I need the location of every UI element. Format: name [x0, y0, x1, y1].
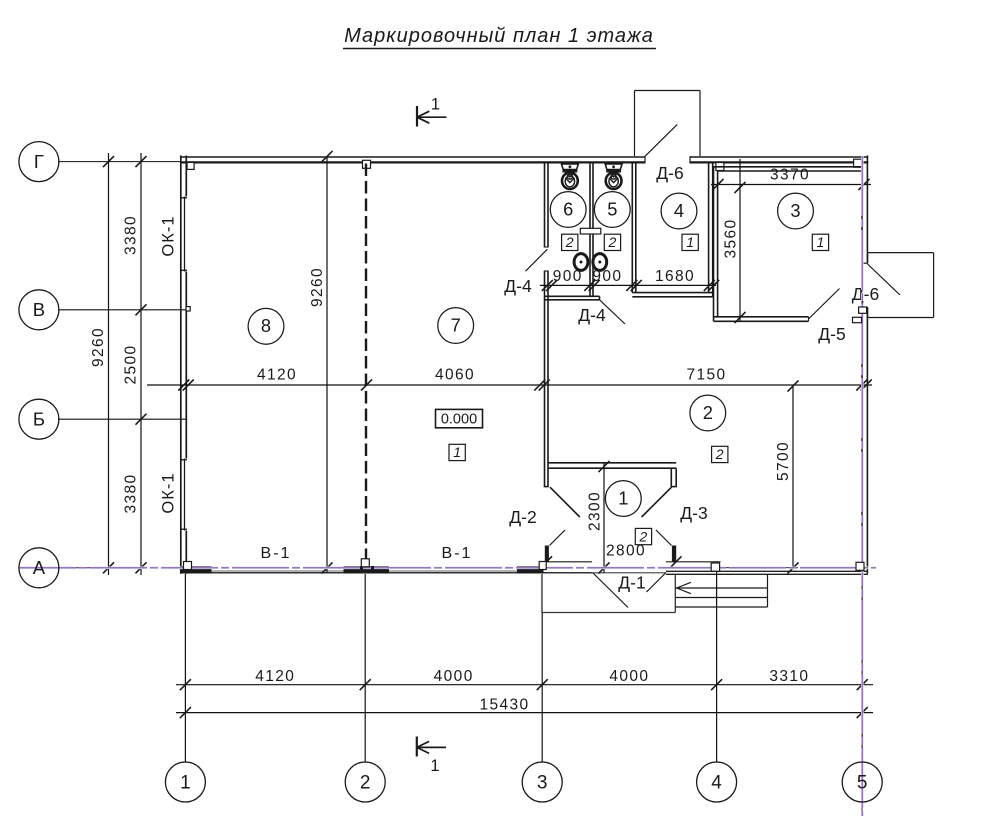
svg-text:900: 900 [553, 268, 583, 285]
svg-text:ОК-1: ОК-1 [160, 472, 178, 513]
svg-text:3: 3 [537, 772, 548, 793]
svg-text:2: 2 [360, 772, 371, 793]
svg-text:5700: 5700 [775, 441, 792, 481]
svg-text:Д-6: Д-6 [852, 284, 879, 304]
svg-text:Д-4: Д-4 [504, 276, 532, 296]
svg-text:Маркировочный план 1 этажа: Маркировочный план 1 этажа [344, 25, 654, 47]
svg-text:5: 5 [607, 198, 617, 219]
svg-text:9260: 9260 [90, 327, 107, 367]
svg-text:2500: 2500 [123, 344, 140, 384]
svg-text:7: 7 [451, 314, 461, 335]
svg-text:4060: 4060 [435, 367, 475, 384]
svg-text:Д-5: Д-5 [818, 324, 845, 344]
svg-text:Б: Б [33, 409, 45, 430]
svg-text:3: 3 [790, 200, 800, 221]
svg-text:2: 2 [703, 402, 713, 423]
svg-text:А: А [33, 557, 46, 578]
svg-text:4: 4 [711, 772, 722, 793]
svg-text:1680: 1680 [655, 268, 695, 285]
svg-text:3380: 3380 [123, 215, 140, 255]
svg-text:4000: 4000 [609, 668, 649, 685]
svg-text:Г: Г [34, 151, 44, 172]
svg-text:2: 2 [715, 446, 724, 462]
svg-text:2: 2 [608, 234, 617, 250]
svg-text:4120: 4120 [255, 668, 295, 685]
svg-text:Д-1: Д-1 [618, 573, 645, 593]
svg-text:2300: 2300 [587, 491, 604, 531]
svg-text:В-1: В-1 [261, 545, 292, 562]
svg-text:3370: 3370 [770, 167, 810, 184]
svg-text:1: 1 [817, 234, 825, 250]
svg-text:1: 1 [180, 772, 191, 793]
svg-text:9260: 9260 [309, 267, 326, 307]
svg-text:1: 1 [453, 444, 461, 460]
svg-text:Д-2: Д-2 [509, 507, 536, 527]
svg-text:1: 1 [618, 487, 628, 508]
svg-text:5: 5 [857, 772, 868, 793]
svg-text:1: 1 [686, 234, 694, 250]
svg-text:900: 900 [592, 268, 622, 285]
svg-text:0.000: 0.000 [441, 411, 477, 427]
svg-text:3380: 3380 [123, 473, 140, 513]
svg-text:3560: 3560 [723, 218, 740, 258]
svg-text:2: 2 [565, 234, 574, 250]
svg-text:4: 4 [674, 200, 684, 221]
svg-text:Д-4: Д-4 [578, 305, 606, 325]
svg-text:Д-3: Д-3 [680, 503, 707, 523]
svg-text:ОК-1: ОК-1 [160, 215, 178, 256]
svg-text:7150: 7150 [686, 367, 726, 384]
svg-text:1: 1 [430, 757, 439, 775]
svg-text:6: 6 [563, 198, 573, 219]
svg-text:1: 1 [431, 96, 440, 114]
svg-text:2800: 2800 [606, 543, 646, 560]
svg-text:4000: 4000 [434, 668, 474, 685]
svg-text:В-1: В-1 [442, 545, 473, 562]
svg-text:В: В [33, 299, 45, 320]
svg-text:Д-6: Д-6 [656, 163, 683, 183]
svg-text:8: 8 [261, 315, 271, 336]
svg-text:4120: 4120 [257, 367, 297, 384]
svg-text:3310: 3310 [769, 668, 809, 685]
svg-text:15430: 15430 [479, 697, 529, 714]
